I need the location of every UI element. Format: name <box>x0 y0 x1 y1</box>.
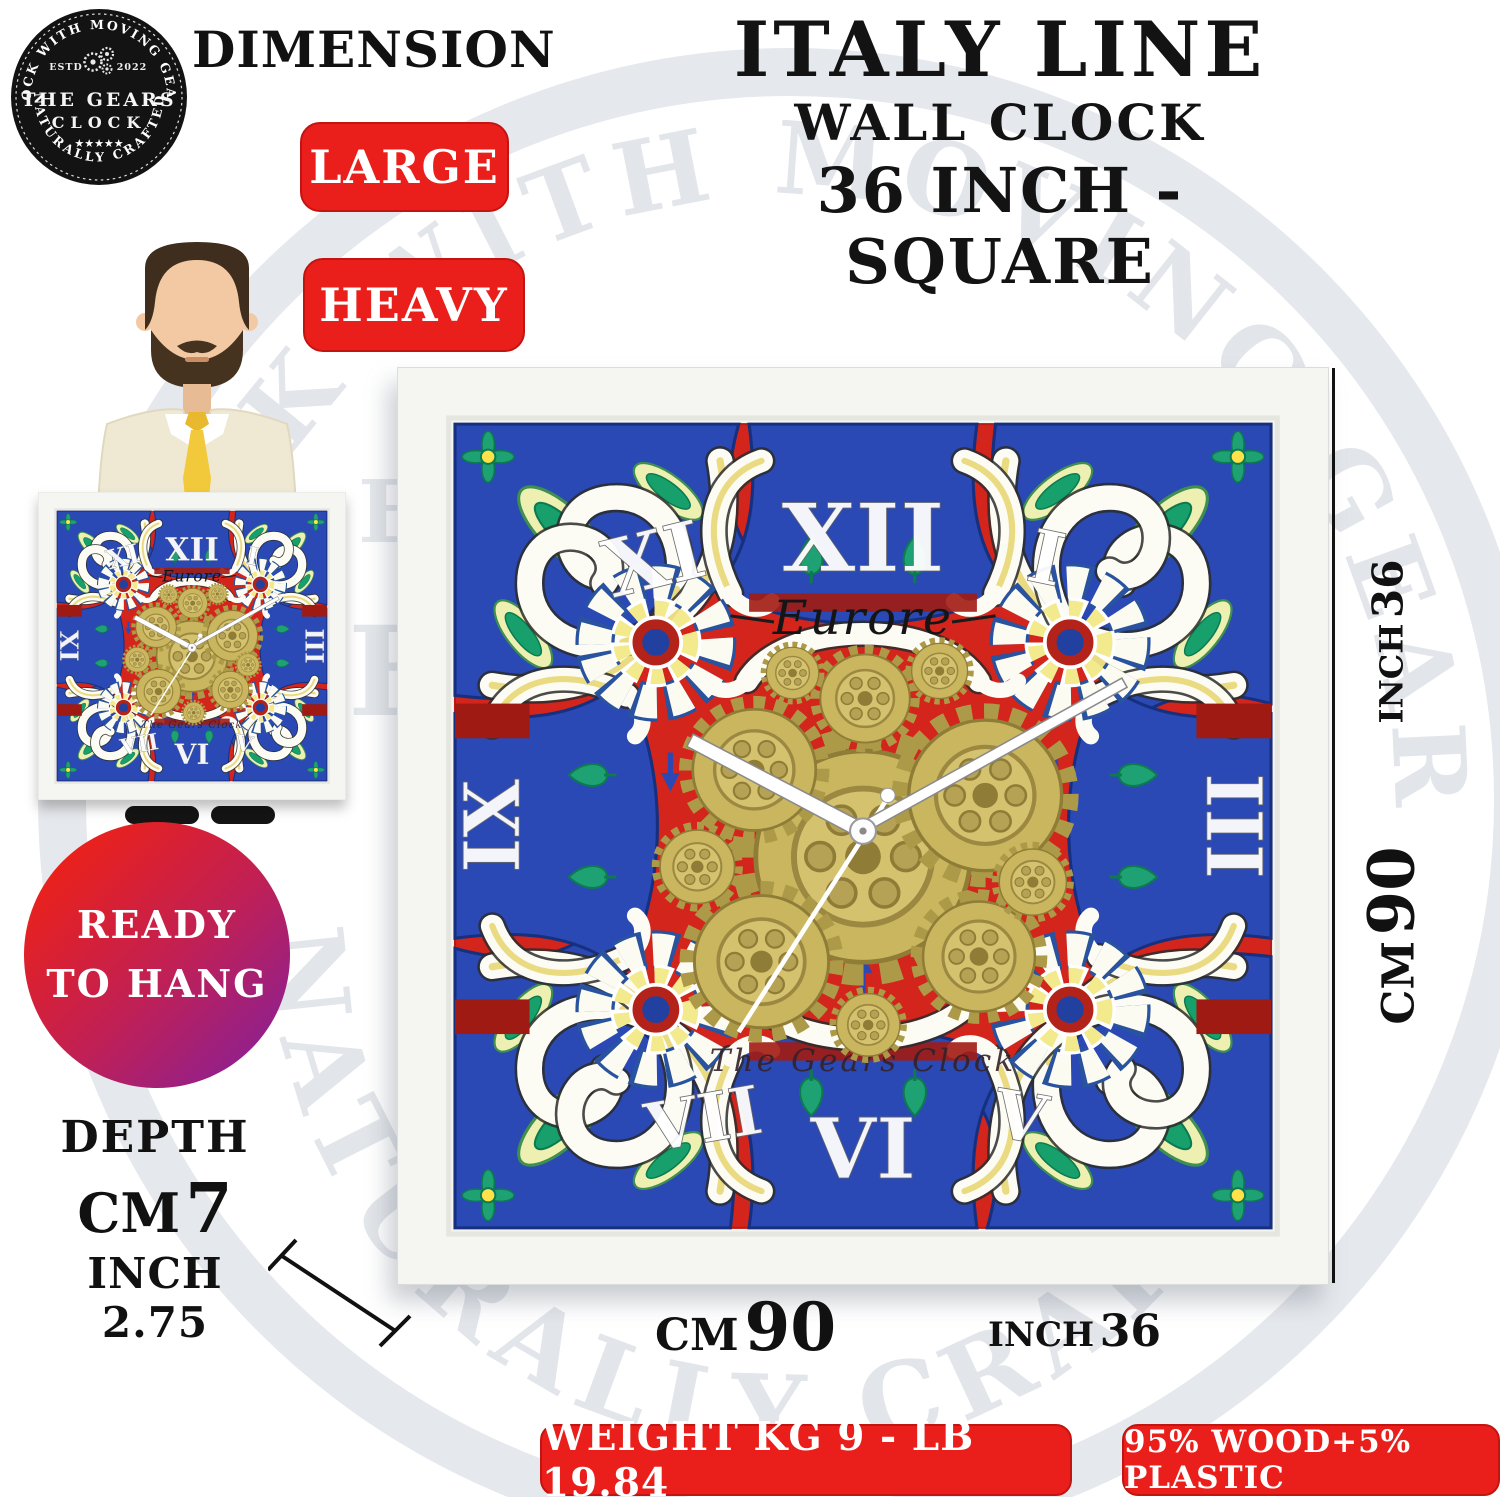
material-badge: 95% WOOD+5% PLASTIC <box>1122 1424 1500 1496</box>
weight-badge-label: WEIGHT KG 9 - LB 19.84 <box>542 1414 1070 1497</box>
height-cm-unit: CM <box>1374 941 1425 1025</box>
depth-spec: DEPTH CM 7 INCH 2.75 <box>30 1112 280 1347</box>
man-shoe-right <box>211 806 275 824</box>
height-inch-value: 36 <box>1364 560 1413 618</box>
ready-to-hang-badge: READY TO HANG <box>24 822 290 1088</box>
width-inch-unit: INCH <box>988 1315 1094 1355</box>
logo-year: 2022 <box>117 62 147 73</box>
title-line-3: 36 INCH - SQUARE <box>700 155 1300 298</box>
depth-cm-unit: CM <box>77 1181 180 1245</box>
product-infographic: CLOCK WITH MOVING GEARS NATURALLY CRAFTE… <box>0 0 1500 1497</box>
depth-dimension-tick <box>268 1238 418 1348</box>
mini-clock-preview <box>38 492 346 800</box>
height-cm-label: CM 90 <box>1355 836 1430 1036</box>
depth-inch: INCH 2.75 <box>30 1249 280 1347</box>
dimension-heading: DIMENSION <box>192 20 492 79</box>
main-clock-image <box>397 367 1329 1285</box>
width-cm-label: CM 90 <box>655 1288 836 1366</box>
depth-cm: CM 7 <box>30 1169 280 1249</box>
material-badge-label: 95% WOOD+5% PLASTIC <box>1124 1424 1498 1496</box>
width-cm-unit: CM <box>655 1310 739 1361</box>
title-line-2: WALL CLOCK <box>700 90 1300 155</box>
title-line-1: ITALY LINE <box>700 10 1300 90</box>
height-dimension-line <box>1332 368 1335 1283</box>
product-title: ITALY LINE WALL CLOCK 36 INCH - SQUARE <box>700 10 1300 297</box>
ready-line-1: READY <box>77 896 237 955</box>
depth-label: DEPTH <box>30 1112 280 1163</box>
width-inch-value: 36 <box>1100 1306 1161 1357</box>
logo-estd: ESTD <box>49 62 82 73</box>
depth-inch-value: 2.75 <box>102 1298 208 1347</box>
depth-cm-value: 7 <box>185 1169 232 1249</box>
brand-logo: CLOCK WITH MOVING GEARS ESTD 2022 THE GE… <box>8 6 190 188</box>
height-inch-label: INCH 36 <box>1364 532 1413 752</box>
width-cm-value: 90 <box>744 1288 836 1366</box>
weight-badge: WEIGHT KG 9 - LB 19.84 <box>540 1424 1072 1496</box>
height-cm-value: 90 <box>1355 846 1430 935</box>
ready-line-2: TO HANG <box>46 955 267 1014</box>
large-badge: LARGE <box>300 122 509 212</box>
large-badge-label: LARGE <box>309 140 500 194</box>
logo-name-line2: CLOCK <box>52 113 147 132</box>
heavy-badge-label: HEAVY <box>319 278 508 332</box>
depth-inch-unit: INCH <box>87 1249 222 1298</box>
heavy-badge: HEAVY <box>303 258 525 352</box>
height-inch-unit: INCH <box>1373 624 1411 724</box>
width-inch-label: INCH 36 <box>988 1306 1161 1357</box>
